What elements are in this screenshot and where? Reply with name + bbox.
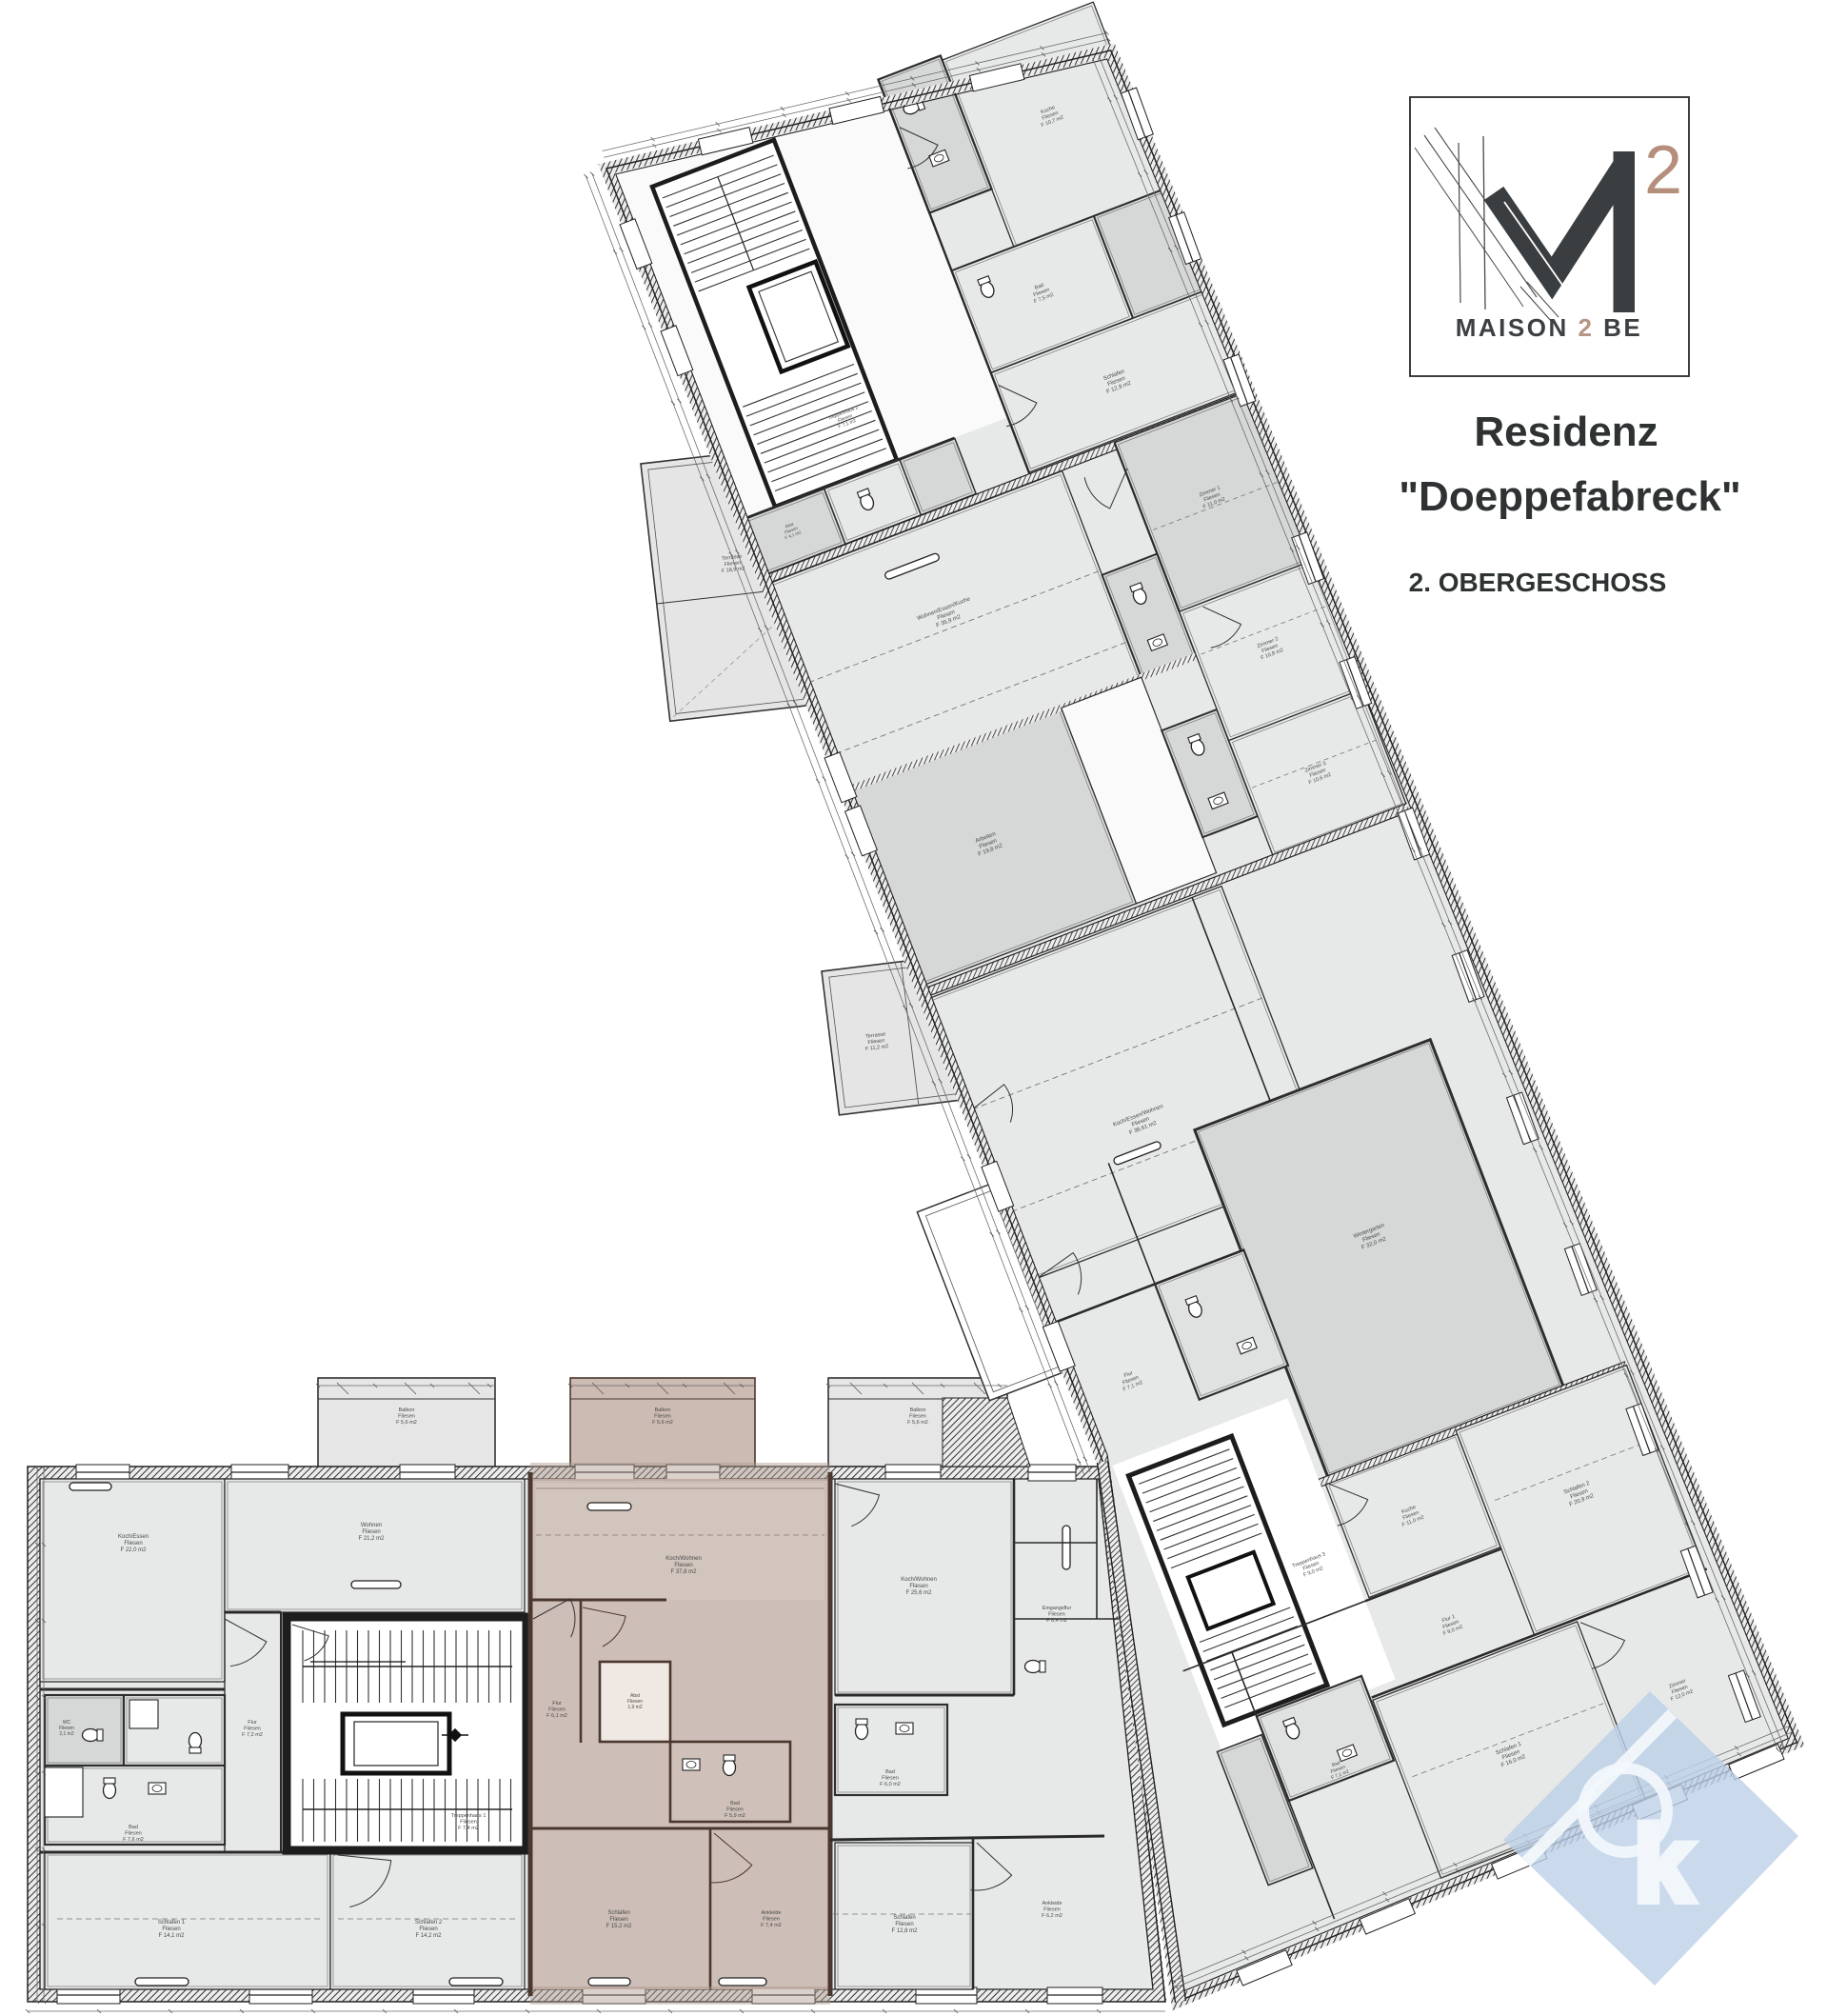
svg-text:2. OBERGESCHOSS: 2. OBERGESCHOSS: [1409, 568, 1667, 597]
svg-text:k: k: [1634, 1805, 1694, 1924]
svg-text:BalkonFliesenF 5,6 m2: BalkonFliesenF 5,6 m2: [907, 1407, 928, 1426]
svg-text:Residenz: Residenz: [1474, 409, 1658, 455]
svg-text:2: 2: [1644, 132, 1682, 209]
svg-text:BalkonFliesenF 5,6 m2: BalkonFliesenF 5,6 m2: [396, 1407, 417, 1426]
svg-text:BalkonFliesenF 5,6 m2: BalkonFliesenF 5,6 m2: [652, 1407, 673, 1426]
svg-text:AnkleideFliesenF 6,2 m2: AnkleideFliesenF 6,2 m2: [1042, 1901, 1062, 1919]
svg-text:"Doeppefabreck": "Doeppefabreck": [1399, 473, 1741, 520]
svg-text:MAISON 2 BE: MAISON 2 BE: [1456, 313, 1643, 342]
svg-text:AnkleideFliesenF 7,4 m2: AnkleideFliesenF 7,4 m2: [761, 1910, 782, 1928]
